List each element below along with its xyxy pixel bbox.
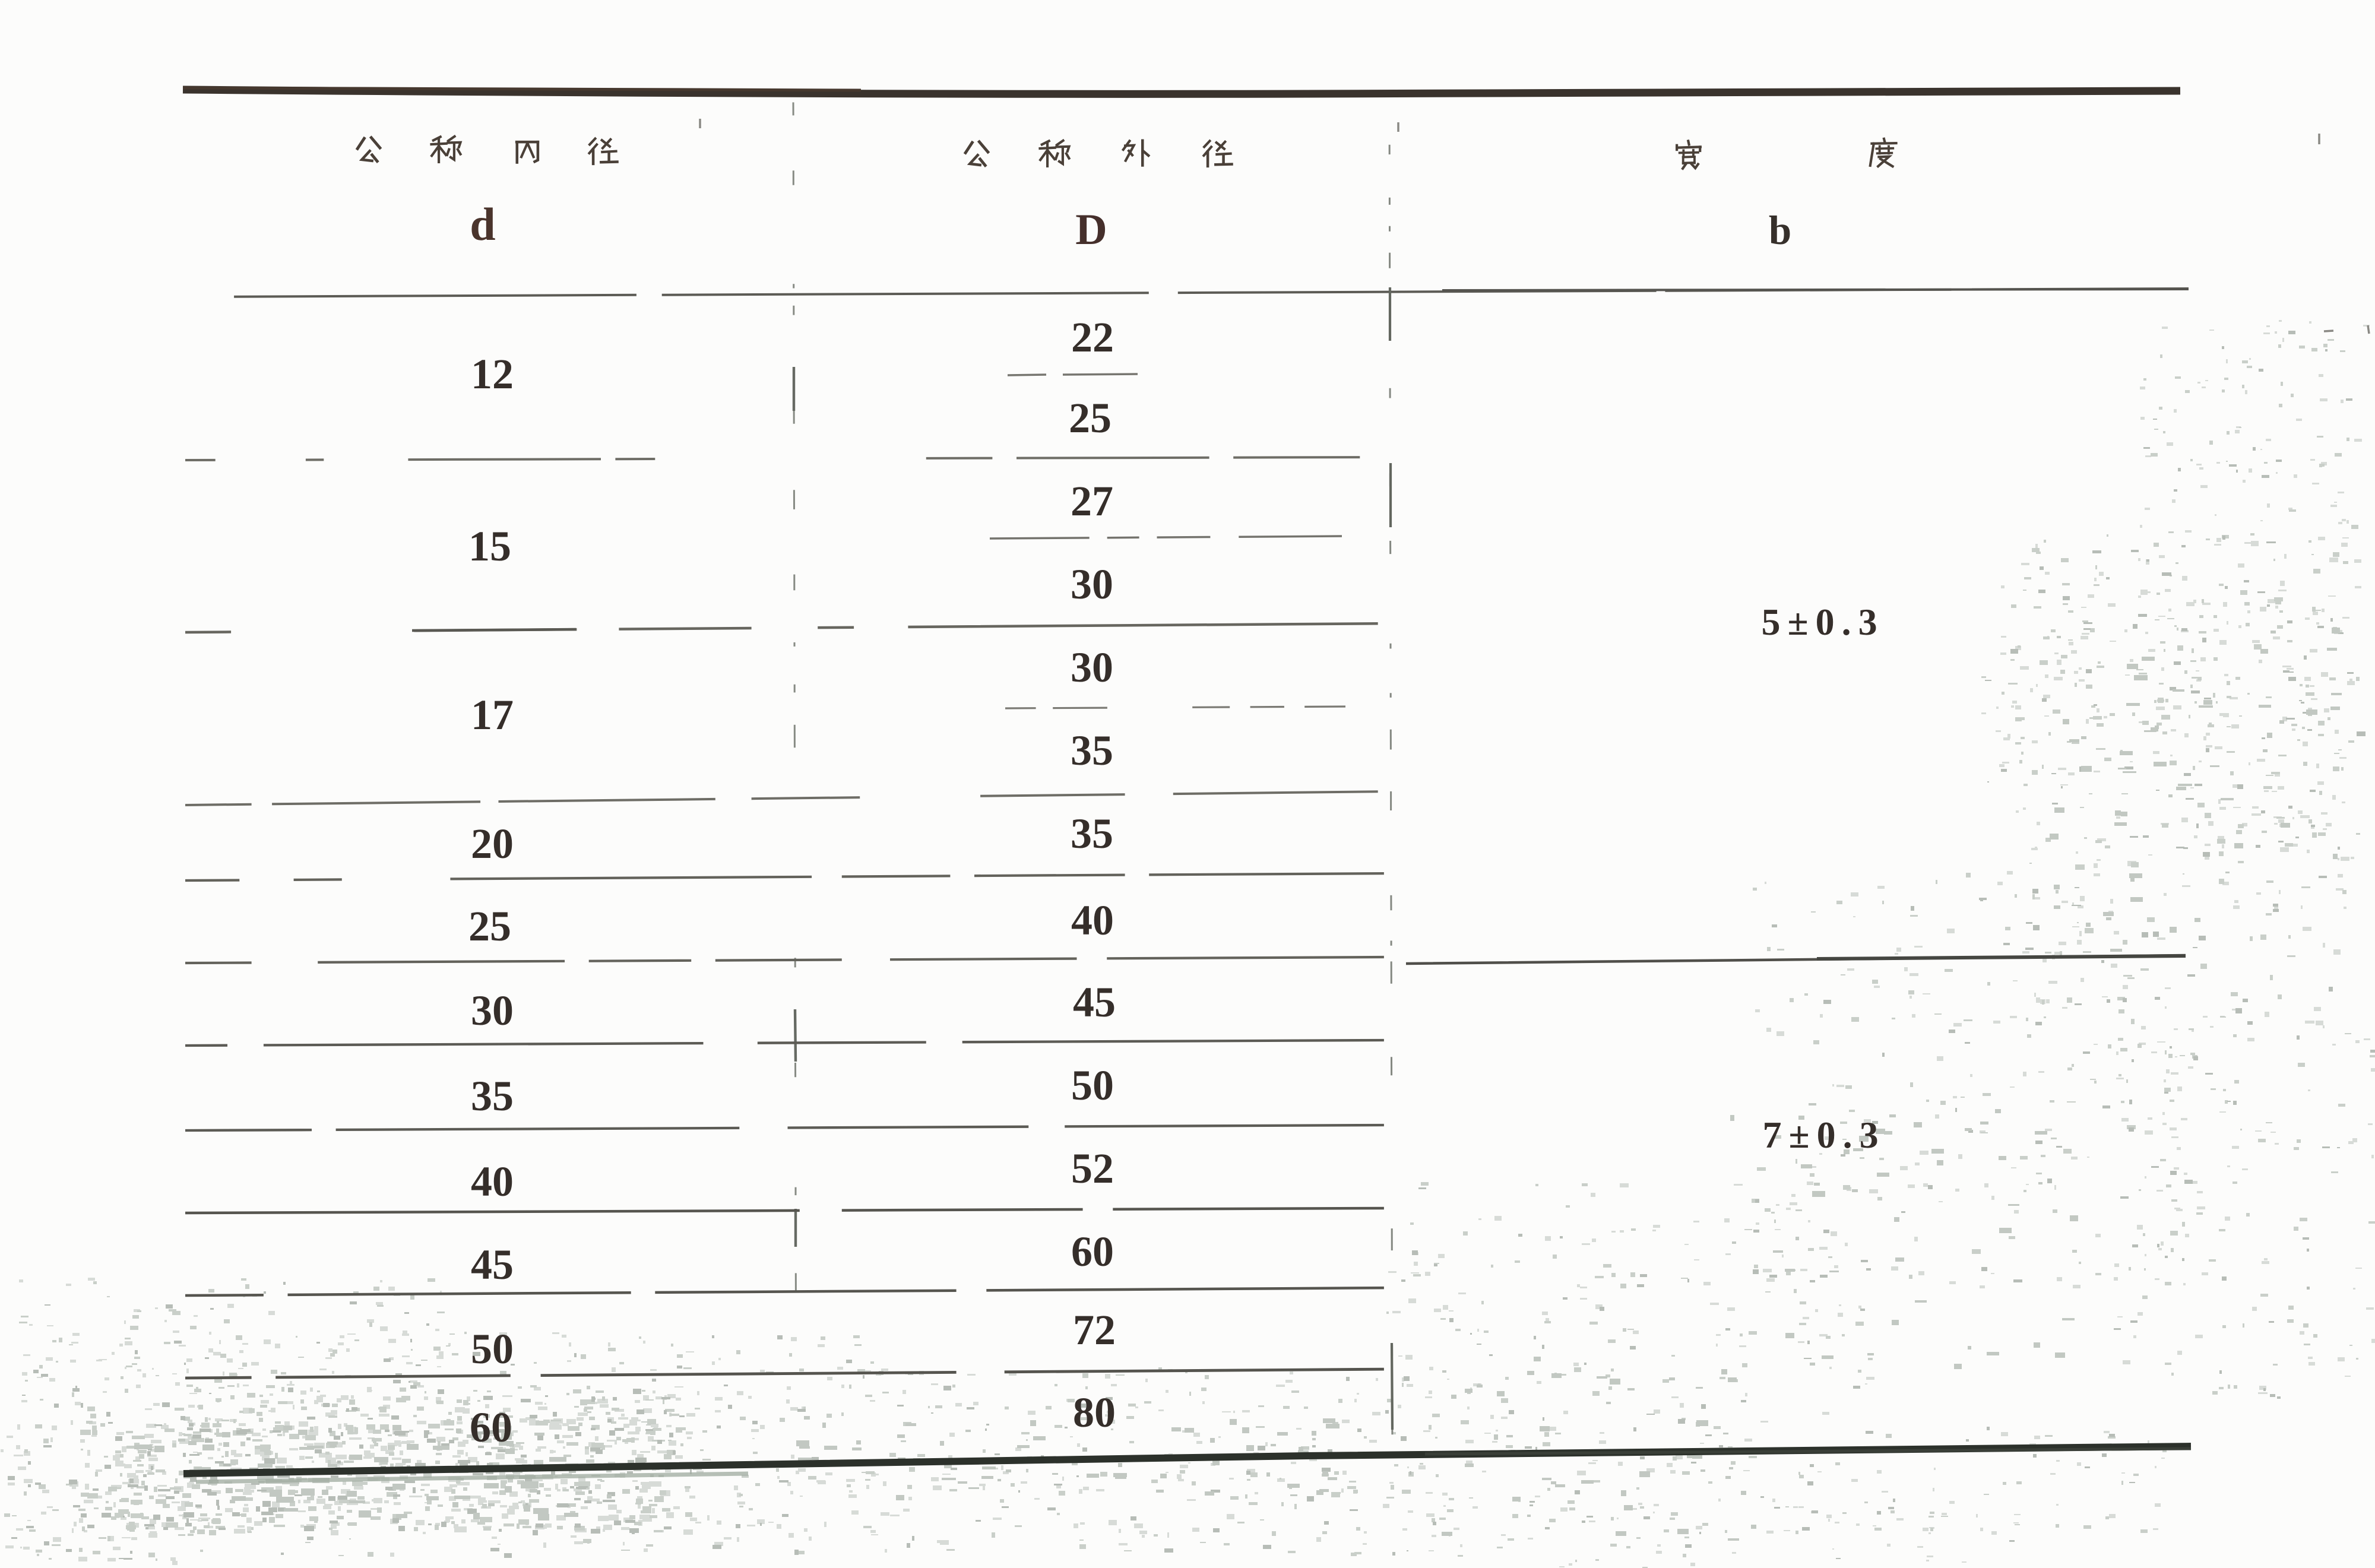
svg-text:27: 27 [1071,477,1113,525]
svg-text:40: 40 [471,1158,514,1205]
svg-text:25: 25 [1069,394,1111,442]
svg-text:52: 52 [1071,1145,1114,1192]
svg-text:35: 35 [1071,810,1113,857]
svg-text:D: D [1075,205,1107,254]
svg-text:60: 60 [470,1404,512,1451]
svg-text:20: 20 [471,820,514,867]
svg-text:45: 45 [1073,978,1116,1026]
svg-text:35: 35 [1071,727,1113,774]
svg-text:60: 60 [1071,1228,1114,1275]
svg-text:12: 12 [471,350,514,398]
svg-text:30: 30 [1071,560,1113,608]
svg-text:15: 15 [468,522,511,570]
svg-text:b: b [1769,208,1791,253]
svg-text:50: 50 [1071,1062,1114,1109]
svg-text:30: 30 [471,987,514,1034]
svg-text:40: 40 [1071,897,1114,944]
svg-text:17: 17 [471,691,514,739]
svg-text:80: 80 [1073,1389,1116,1436]
svg-text:50: 50 [471,1325,514,1373]
svg-text:5±0.3: 5±0.3 [1761,601,1884,643]
svg-text:22: 22 [1071,313,1114,361]
svg-text:72: 72 [1073,1306,1116,1354]
svg-text:7±0.3: 7±0.3 [1762,1114,1885,1156]
svg-text:35: 35 [471,1072,514,1120]
svg-text:25: 25 [468,902,511,950]
svg-text:30: 30 [1071,644,1113,691]
svg-text:d: d [470,198,495,250]
svg-text:45: 45 [471,1241,514,1288]
